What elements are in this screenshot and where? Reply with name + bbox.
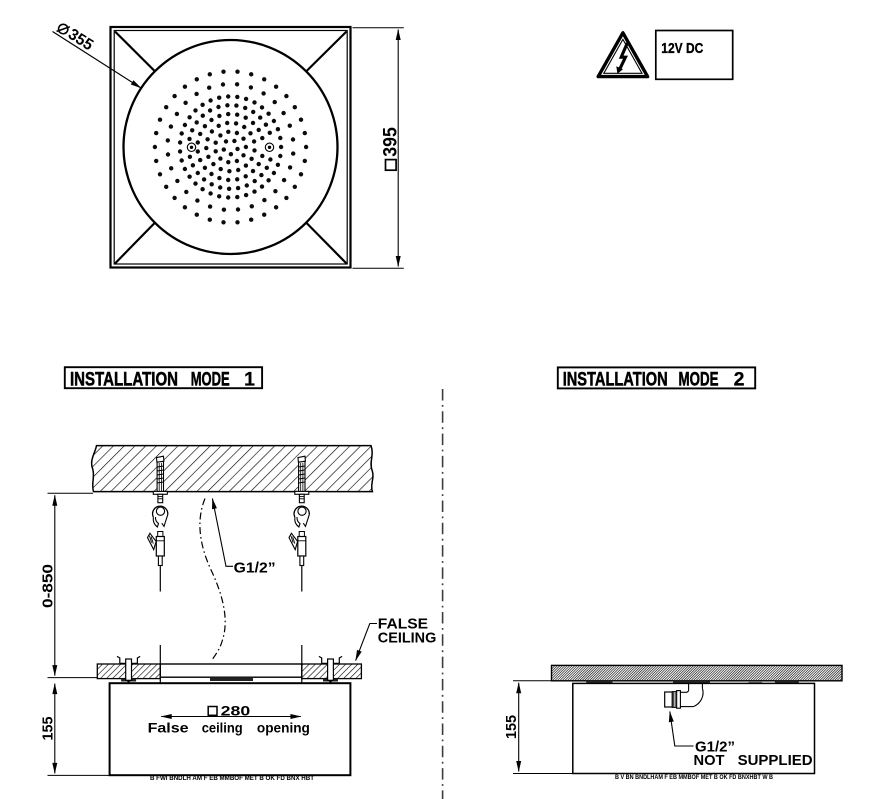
svg-text:INSTALLATION: INSTALLATION	[563, 369, 668, 391]
svg-text:opening: opening	[257, 720, 310, 736]
svg-text:MODE: MODE	[679, 369, 719, 391]
svg-text:280: 280	[221, 702, 251, 718]
svg-text:G1/2”: G1/2”	[234, 559, 276, 576]
svg-text:155: 155	[39, 717, 56, 741]
svg-text:NOT: NOT	[694, 752, 725, 769]
svg-text:False: False	[148, 720, 189, 736]
svg-text:MODE: MODE	[191, 369, 230, 391]
svg-text:155: 155	[503, 715, 520, 739]
svg-text:12V DC: 12V DC	[661, 40, 703, 57]
svg-text:2: 2	[734, 369, 745, 391]
svg-text:INSTALLATION: INSTALLATION	[70, 369, 178, 391]
svg-text:1: 1	[244, 369, 255, 391]
svg-text:B V BN BNDLHAM F EB MMBOF MET: B V BN BNDLHAM F EB MMBOF MET B OK FD BN…	[615, 775, 774, 781]
svg-text:0-850: 0-850	[39, 564, 56, 608]
svg-text:ceiling: ceiling	[202, 720, 243, 736]
svg-text:CEILING: CEILING	[378, 629, 437, 646]
svg-text:395: 395	[380, 127, 401, 157]
svg-text:B FWI BNDLH AM F EB MMBOF MET: B FWI BNDLH AM F EB MMBOF MET B OK FD BN…	[150, 776, 314, 782]
svg-text:SUPPLIED: SUPPLIED	[738, 752, 813, 769]
